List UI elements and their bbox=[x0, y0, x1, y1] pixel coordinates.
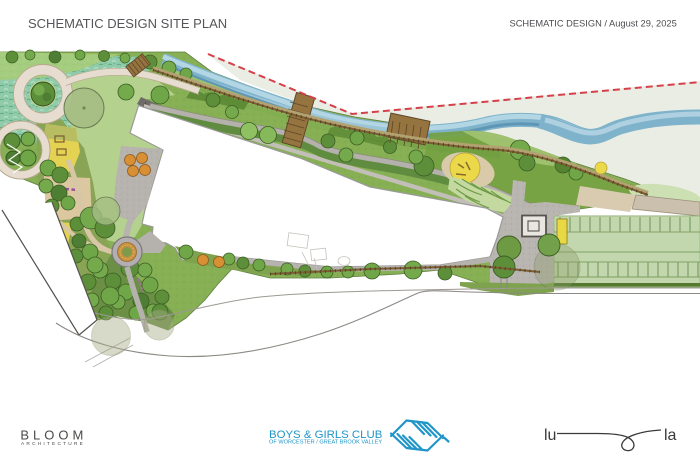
svg-text:OF WORCESTER / GREAT BROOK VAL: OF WORCESTER / GREAT BROOK VALLEY bbox=[269, 440, 382, 446]
svg-text:ARCHITECTURE: ARCHITECTURE bbox=[21, 441, 85, 447]
svg-text:SCHEMATIC DESIGN / August 29,: SCHEMATIC DESIGN / August 29, 2025 bbox=[510, 19, 677, 29]
svg-text:la: la bbox=[664, 427, 677, 444]
svg-text:lu: lu bbox=[544, 427, 556, 444]
svg-text:BLOOM: BLOOM bbox=[20, 428, 87, 443]
svg-text:SCHEMATIC DESIGN SITE PLAN: SCHEMATIC DESIGN SITE PLAN bbox=[28, 16, 227, 31]
